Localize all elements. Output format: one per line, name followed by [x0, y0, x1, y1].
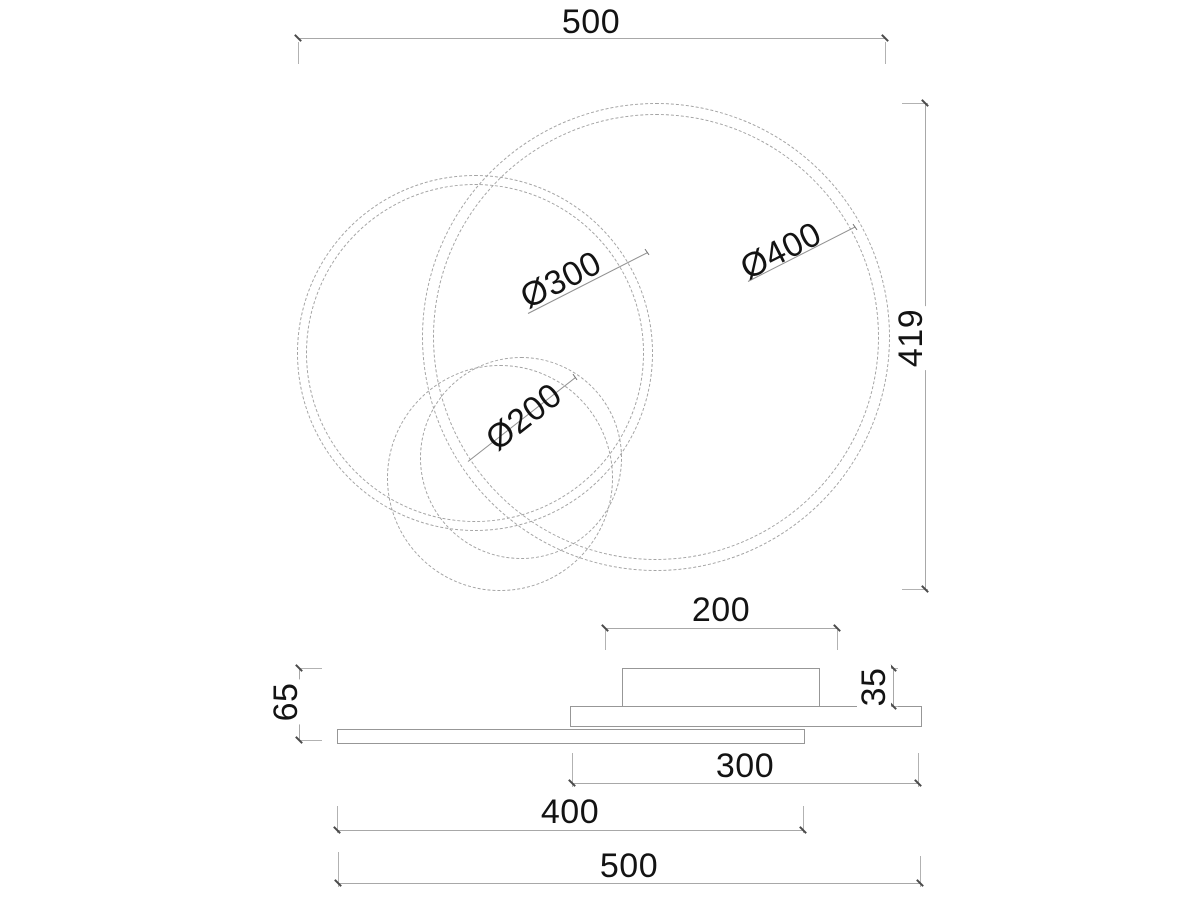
extension-line	[298, 42, 299, 64]
extension-line	[837, 630, 838, 650]
extension-line	[299, 668, 322, 669]
canopy-reference-circle	[387, 365, 613, 591]
dim-text-canopy-width: 200	[692, 593, 750, 627]
dim-text-overall-height: 419	[894, 306, 928, 370]
canopy-box	[622, 668, 820, 708]
extension-line	[605, 630, 606, 650]
technical-drawing-canvas: 500 419 Ø400 Ø300 Ø200 200	[0, 0, 1200, 899]
dim-text-canopy-height: 35	[857, 665, 891, 710]
dim-text-top-width: 500	[562, 5, 620, 39]
dim-text-plate-width: 300	[716, 749, 774, 783]
dim-text-bar-width: 400	[541, 795, 599, 829]
dim-line-canopy-height	[893, 668, 894, 706]
long-bar	[337, 729, 805, 744]
extension-line	[299, 740, 322, 741]
dim-text-fixture-height: 65	[269, 680, 303, 725]
dim-text-overall-width: 500	[600, 849, 658, 883]
extension-line	[885, 42, 886, 64]
